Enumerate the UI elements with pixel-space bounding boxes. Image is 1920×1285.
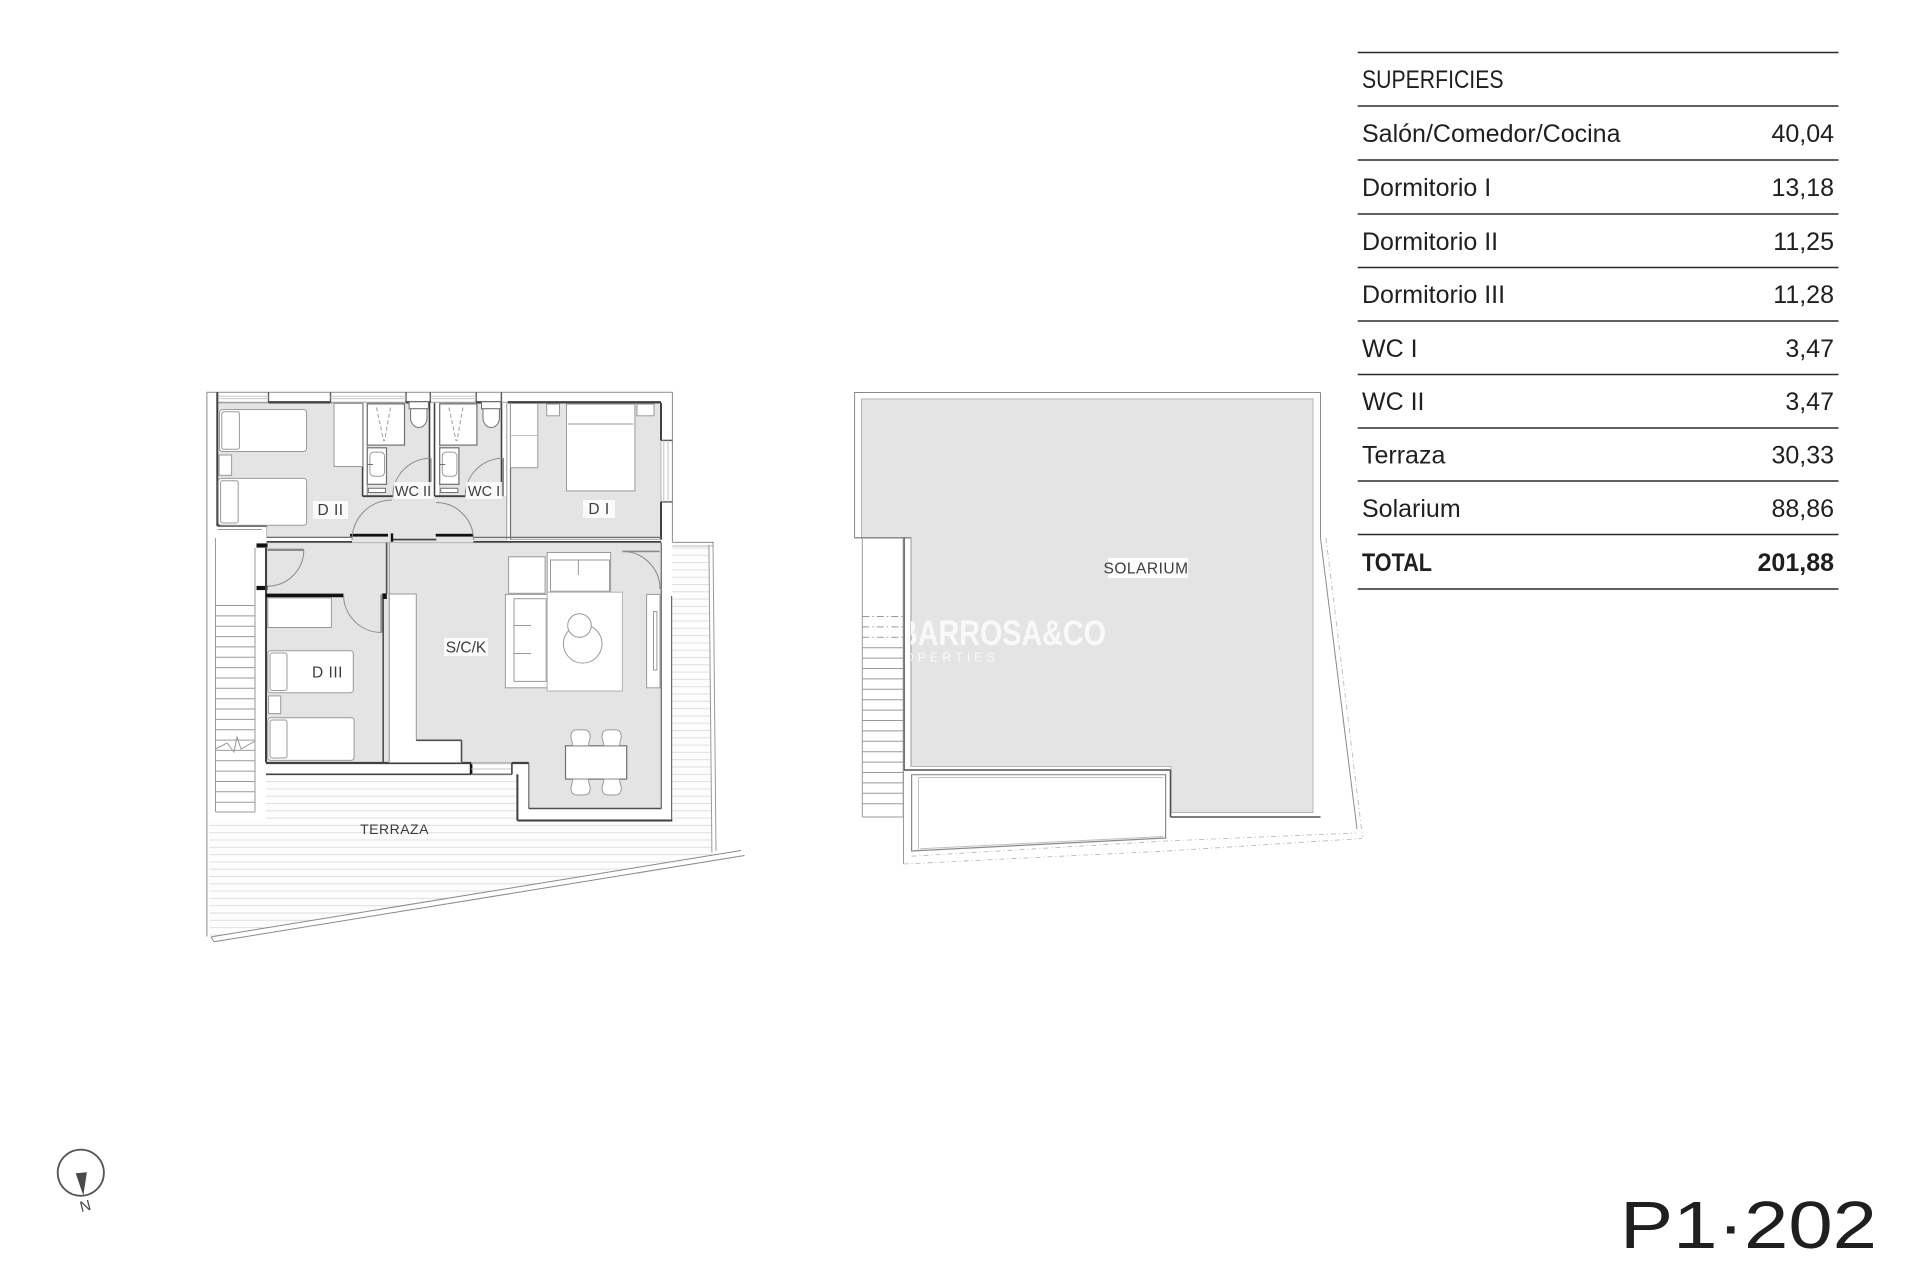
svg-text:D I: D I: [588, 501, 609, 518]
svg-text:BARROSA&CO: BARROSA&CO: [897, 613, 1106, 653]
svg-text:3,47: 3,47: [1785, 335, 1834, 363]
svg-text:TOTAL: TOTAL: [1362, 549, 1432, 577]
svg-text:WC I: WC I: [468, 484, 500, 500]
svg-text:11,28: 11,28: [1773, 281, 1834, 309]
svg-text:201,88: 201,88: [1758, 549, 1835, 577]
svg-text:Dormitorio III: Dormitorio III: [1362, 281, 1505, 309]
svg-text:P1·202: P1·202: [1620, 1188, 1877, 1263]
svg-text:WC I: WC I: [1362, 335, 1418, 363]
svg-text:Dormitorio I: Dormitorio I: [1362, 174, 1491, 202]
svg-text:11,25: 11,25: [1773, 228, 1834, 256]
svg-text:88,86: 88,86: [1771, 495, 1834, 523]
svg-text:SUPERFICIES: SUPERFICIES: [1362, 66, 1504, 94]
svg-text:WC II: WC II: [395, 484, 431, 500]
svg-text:3,47: 3,47: [1785, 388, 1834, 416]
svg-text:30,33: 30,33: [1771, 442, 1834, 470]
svg-text:Dormitorio II: Dormitorio II: [1362, 228, 1498, 256]
svg-text:D II: D II: [317, 502, 343, 519]
svg-text:13,18: 13,18: [1771, 174, 1834, 202]
svg-text:TERRAZA: TERRAZA: [360, 821, 429, 837]
svg-text:SOLARIUM: SOLARIUM: [1104, 561, 1189, 578]
svg-text:Salón/Comedor/Cocina: Salón/Comedor/Cocina: [1362, 120, 1621, 148]
svg-text:WC II: WC II: [1362, 388, 1425, 416]
svg-text:Terraza: Terraza: [1362, 442, 1445, 470]
svg-text:D III: D III: [312, 665, 343, 682]
svg-text:S/C/K: S/C/K: [446, 640, 487, 657]
svg-text:40,04: 40,04: [1771, 120, 1834, 148]
svg-text:Solarium: Solarium: [1362, 495, 1461, 523]
